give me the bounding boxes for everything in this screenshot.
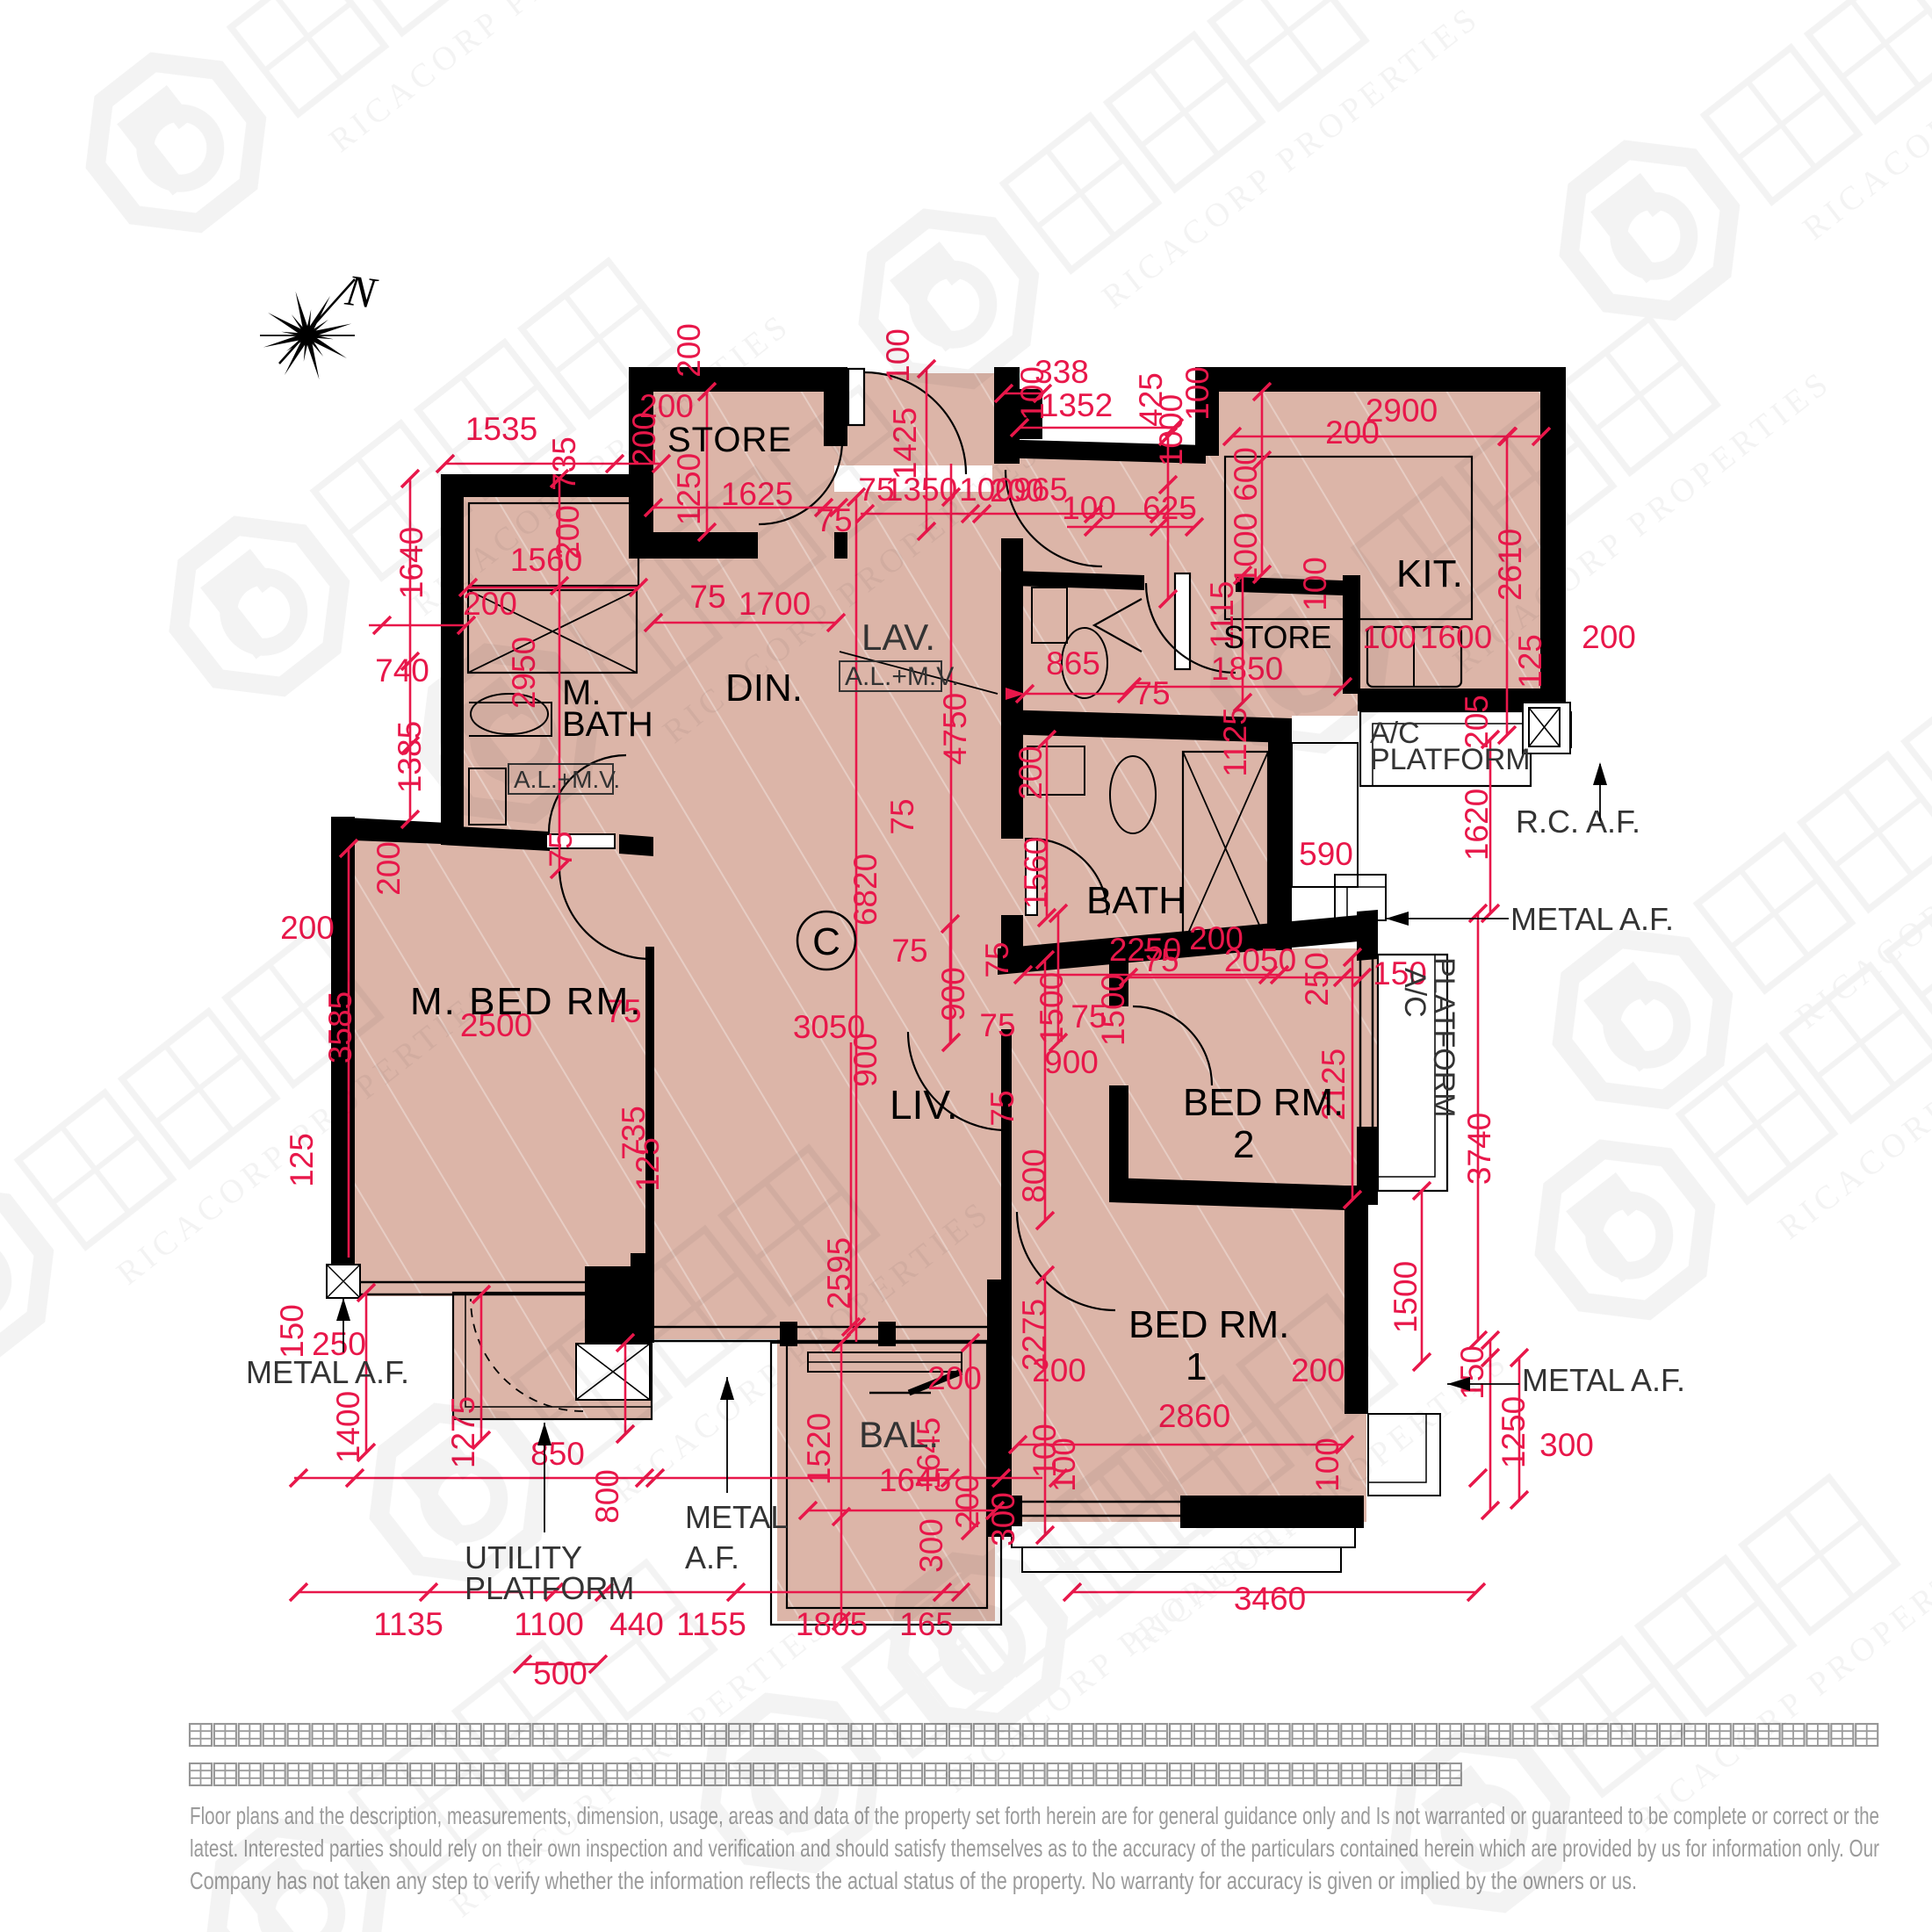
svg-text:200: 200	[371, 841, 407, 896]
svg-text:BATH: BATH	[1086, 879, 1186, 922]
svg-text:75: 75	[543, 831, 579, 867]
svg-text:3740: 3740	[1461, 1113, 1497, 1185]
svg-text:75: 75	[884, 798, 920, 834]
svg-text:75: 75	[1071, 998, 1107, 1034]
svg-text:1352: 1352	[1041, 387, 1113, 423]
svg-text:1645: 1645	[879, 1462, 951, 1498]
svg-text:75: 75	[1143, 942, 1179, 978]
svg-text:METAL: METAL	[685, 1499, 788, 1535]
svg-text:METAL A.F.: METAL A.F.	[1510, 901, 1674, 937]
svg-text:1560: 1560	[1018, 837, 1054, 909]
svg-text:75: 75	[979, 1007, 1015, 1043]
svg-text:2050: 2050	[1224, 942, 1296, 978]
svg-text:75: 75	[979, 941, 1015, 977]
svg-text:1400: 1400	[330, 1391, 366, 1463]
svg-text:200: 200	[1032, 1352, 1086, 1388]
svg-text:2900: 2900	[1366, 393, 1438, 429]
svg-text:200: 200	[927, 1360, 982, 1396]
svg-text:LIV.: LIV.	[890, 1082, 958, 1128]
svg-text:BATH: BATH	[562, 705, 653, 744]
svg-text:1000: 1000	[1228, 513, 1264, 585]
svg-text:A.F.: A.F.	[685, 1539, 739, 1575]
svg-text:900: 900	[935, 967, 971, 1021]
svg-text:PLATFORM: PLATFORM	[1370, 743, 1531, 776]
svg-text:1250: 1250	[1496, 1396, 1532, 1468]
svg-text:3460: 3460	[1234, 1581, 1306, 1617]
svg-text:1520: 1520	[801, 1413, 837, 1485]
svg-text:200: 200	[280, 910, 335, 946]
svg-text:3585: 3585	[322, 991, 358, 1063]
svg-text:A/C: A/C	[1398, 968, 1431, 1018]
svg-text:1135: 1135	[373, 1606, 443, 1642]
svg-text:BED RM.: BED RM.	[1128, 1303, 1289, 1346]
svg-text:BAL.: BAL.	[859, 1414, 939, 1455]
svg-text:A.L.+M.V.: A.L.+M.V.	[845, 662, 959, 691]
svg-text:200: 200	[1013, 746, 1049, 800]
svg-text:1: 1	[1186, 1345, 1207, 1388]
svg-text:625: 625	[1143, 490, 1197, 526]
svg-text:75: 75	[984, 1090, 1020, 1126]
svg-text:865: 865	[1046, 645, 1100, 681]
svg-text:METAL A.F.: METAL A.F.	[246, 1354, 409, 1390]
svg-text:2: 2	[1233, 1123, 1254, 1166]
svg-text:1100: 1100	[514, 1606, 584, 1642]
svg-text:200: 200	[1582, 619, 1636, 655]
svg-text:900: 900	[1044, 1044, 1099, 1080]
svg-text:75: 75	[891, 933, 927, 969]
svg-text:100: 100	[1014, 366, 1050, 421]
svg-text:600: 600	[1228, 447, 1264, 501]
svg-text:300: 300	[1539, 1427, 1594, 1463]
svg-text:4750: 4750	[937, 693, 973, 765]
svg-text:900: 900	[847, 1033, 883, 1087]
svg-text:PLATFORM: PLATFORM	[1427, 957, 1460, 1118]
svg-text:200: 200	[463, 586, 517, 622]
svg-text:LAV.: LAV.	[861, 616, 935, 658]
svg-text:150: 150	[274, 1304, 310, 1359]
svg-text:BED RM.: BED RM.	[1183, 1081, 1344, 1124]
svg-text:R.C. A.F.: R.C. A.F.	[1516, 804, 1640, 840]
svg-text:6820: 6820	[847, 854, 883, 926]
svg-text:75: 75	[1134, 675, 1170, 711]
svg-text:METAL A.F.: METAL A.F.	[1522, 1362, 1685, 1398]
svg-text:590: 590	[1299, 836, 1353, 872]
svg-text:1500: 1500	[1388, 1261, 1424, 1333]
svg-text:100: 100	[1062, 490, 1116, 526]
svg-text:205: 205	[1459, 695, 1495, 749]
svg-text:1500: 1500	[1034, 972, 1070, 1044]
svg-text:C: C	[812, 920, 840, 963]
svg-text:1620: 1620	[1459, 789, 1495, 861]
svg-text:740: 740	[375, 652, 429, 688]
svg-text:800: 800	[1016, 1149, 1052, 1203]
svg-text:250: 250	[1299, 952, 1335, 1006]
svg-text:100: 100	[1179, 366, 1215, 421]
svg-text:200: 200	[949, 1474, 985, 1529]
svg-text:735: 735	[616, 1106, 652, 1160]
